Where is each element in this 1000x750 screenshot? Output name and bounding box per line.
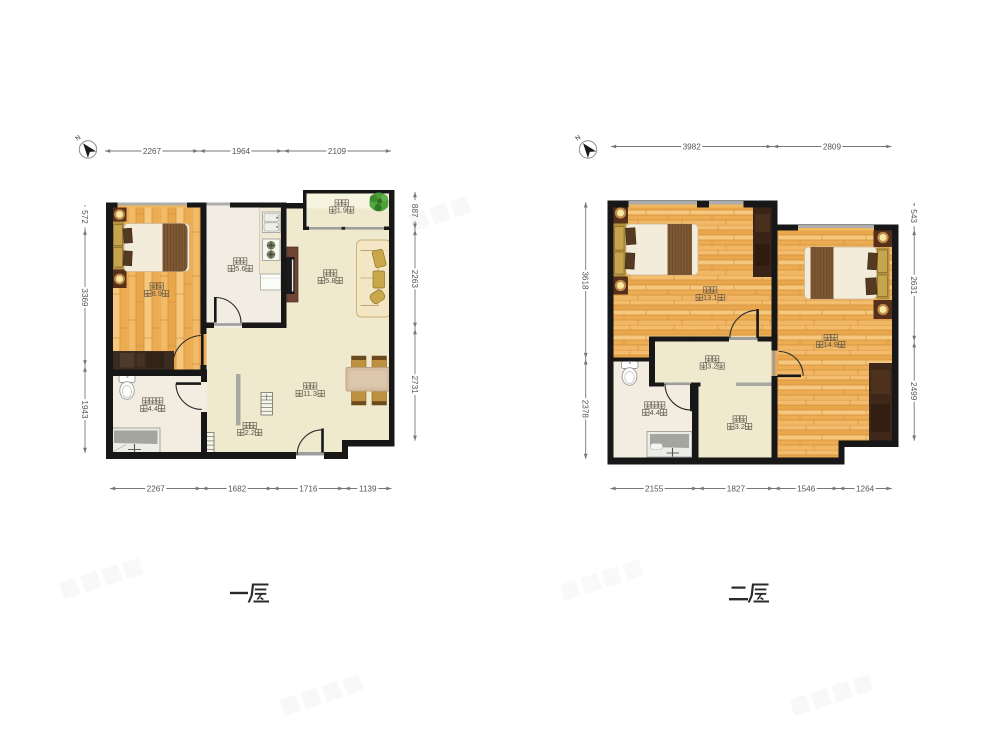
svg-text:14.9: 14.9 — [823, 340, 838, 349]
svg-text:1943: 1943 — [80, 400, 89, 419]
svg-text:2809: 2809 — [823, 143, 842, 152]
svg-text:543: 543 — [909, 209, 918, 223]
svg-text:2378: 2378 — [581, 400, 590, 419]
svg-text:13.1: 13.1 — [703, 293, 718, 302]
svg-text:1827: 1827 — [727, 485, 746, 494]
svg-text:2.2: 2.2 — [245, 428, 255, 437]
svg-text:1264: 1264 — [856, 485, 875, 494]
svg-text:2267: 2267 — [147, 485, 166, 494]
svg-text:2155: 2155 — [645, 485, 664, 494]
svg-text:1682: 1682 — [228, 485, 247, 494]
svg-text:2109: 2109 — [328, 147, 347, 156]
svg-text:8.9: 8.9 — [152, 289, 162, 298]
svg-text:3.2: 3.2 — [735, 422, 745, 431]
svg-text:4.4: 4.4 — [650, 408, 660, 417]
svg-text:1964: 1964 — [232, 147, 251, 156]
svg-text:3369: 3369 — [80, 288, 89, 307]
svg-text:1139: 1139 — [359, 485, 377, 494]
svg-text:3618: 3618 — [581, 271, 590, 290]
svg-text:2267: 2267 — [143, 147, 162, 156]
svg-text:2499: 2499 — [909, 382, 918, 401]
svg-text:1.9: 1.9 — [337, 206, 347, 215]
svg-text:11.3: 11.3 — [303, 389, 317, 398]
svg-text:1716: 1716 — [299, 485, 318, 494]
svg-text:2263: 2263 — [410, 270, 419, 289]
svg-text:5.8: 5.8 — [325, 276, 335, 285]
svg-text:2631: 2631 — [909, 276, 918, 295]
svg-text:572: 572 — [80, 210, 89, 224]
svg-text:2731: 2731 — [410, 375, 419, 394]
svg-text:4.4: 4.4 — [148, 404, 158, 413]
svg-text:1546: 1546 — [797, 485, 816, 494]
svg-text:3.2: 3.2 — [707, 362, 717, 371]
svg-text:3982: 3982 — [683, 143, 702, 152]
svg-text:5.6: 5.6 — [235, 264, 245, 273]
